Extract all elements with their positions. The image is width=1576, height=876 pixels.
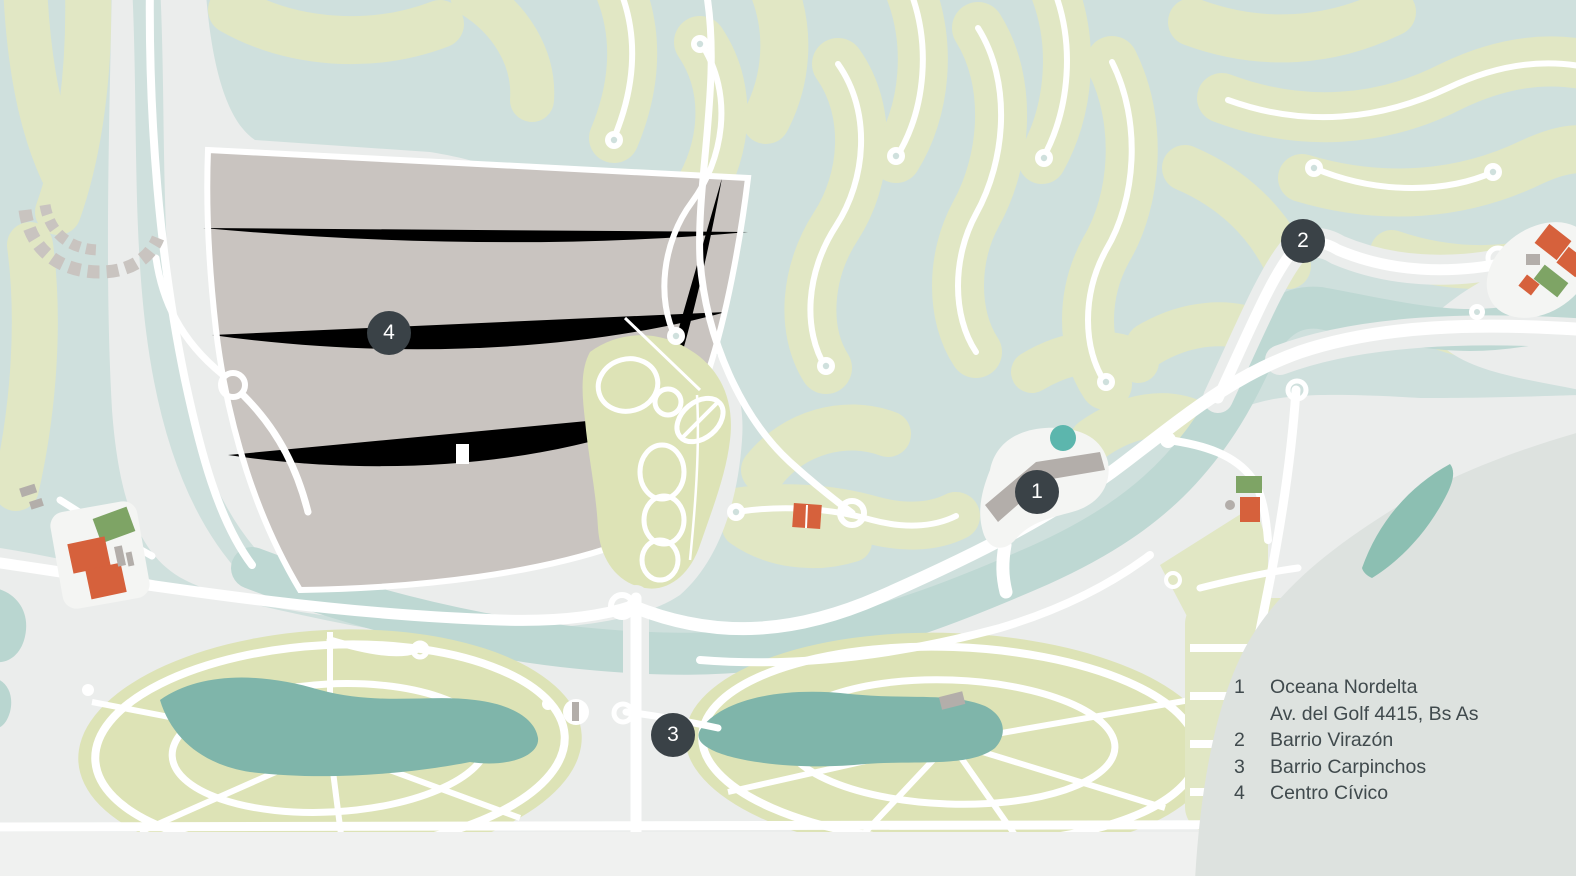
marker-3-barrio-carpinchos[interactable]: 3 (651, 713, 695, 757)
monument (563, 699, 589, 725)
marker-number: 3 (667, 723, 679, 747)
legend-item-2: 2 Barrio Virazón (1234, 727, 1534, 754)
marker-1-oceana-nordelta[interactable]: 1 (1015, 470, 1059, 514)
legend-item-1: 1 Oceana Nordelta Av. del Golf 4415, Bs … (1234, 674, 1534, 727)
legend-label: Barrio Carpinchos (1270, 754, 1534, 781)
marker-2-barrio-virazon[interactable]: 2 (1281, 219, 1325, 263)
legend-number: 2 (1234, 727, 1264, 754)
marker-number: 4 (383, 321, 395, 345)
legend-label: Oceana Nordelta Av. del Golf 4415, Bs As (1270, 674, 1534, 727)
marker-4-centro-civico[interactable]: 4 (367, 311, 411, 355)
legend-number: 3 (1234, 754, 1264, 781)
legend-number: 1 (1234, 674, 1264, 727)
map-legend: 1 Oceana Nordelta Av. del Golf 4415, Bs … (1234, 674, 1534, 807)
legend-label: Centro Cívico (1270, 780, 1534, 807)
nordelta-map: 1 2 3 4 1 Oceana Nordelta Av. del Golf 4… (0, 0, 1576, 876)
legend-label: Barrio Virazón (1270, 727, 1534, 754)
legend-number: 4 (1234, 780, 1264, 807)
marker-number: 2 (1297, 229, 1309, 253)
legend-item-4: 4 Centro Cívico (1234, 780, 1534, 807)
marker-number: 1 (1031, 480, 1043, 504)
legend-item-3: 3 Barrio Carpinchos (1234, 754, 1534, 781)
